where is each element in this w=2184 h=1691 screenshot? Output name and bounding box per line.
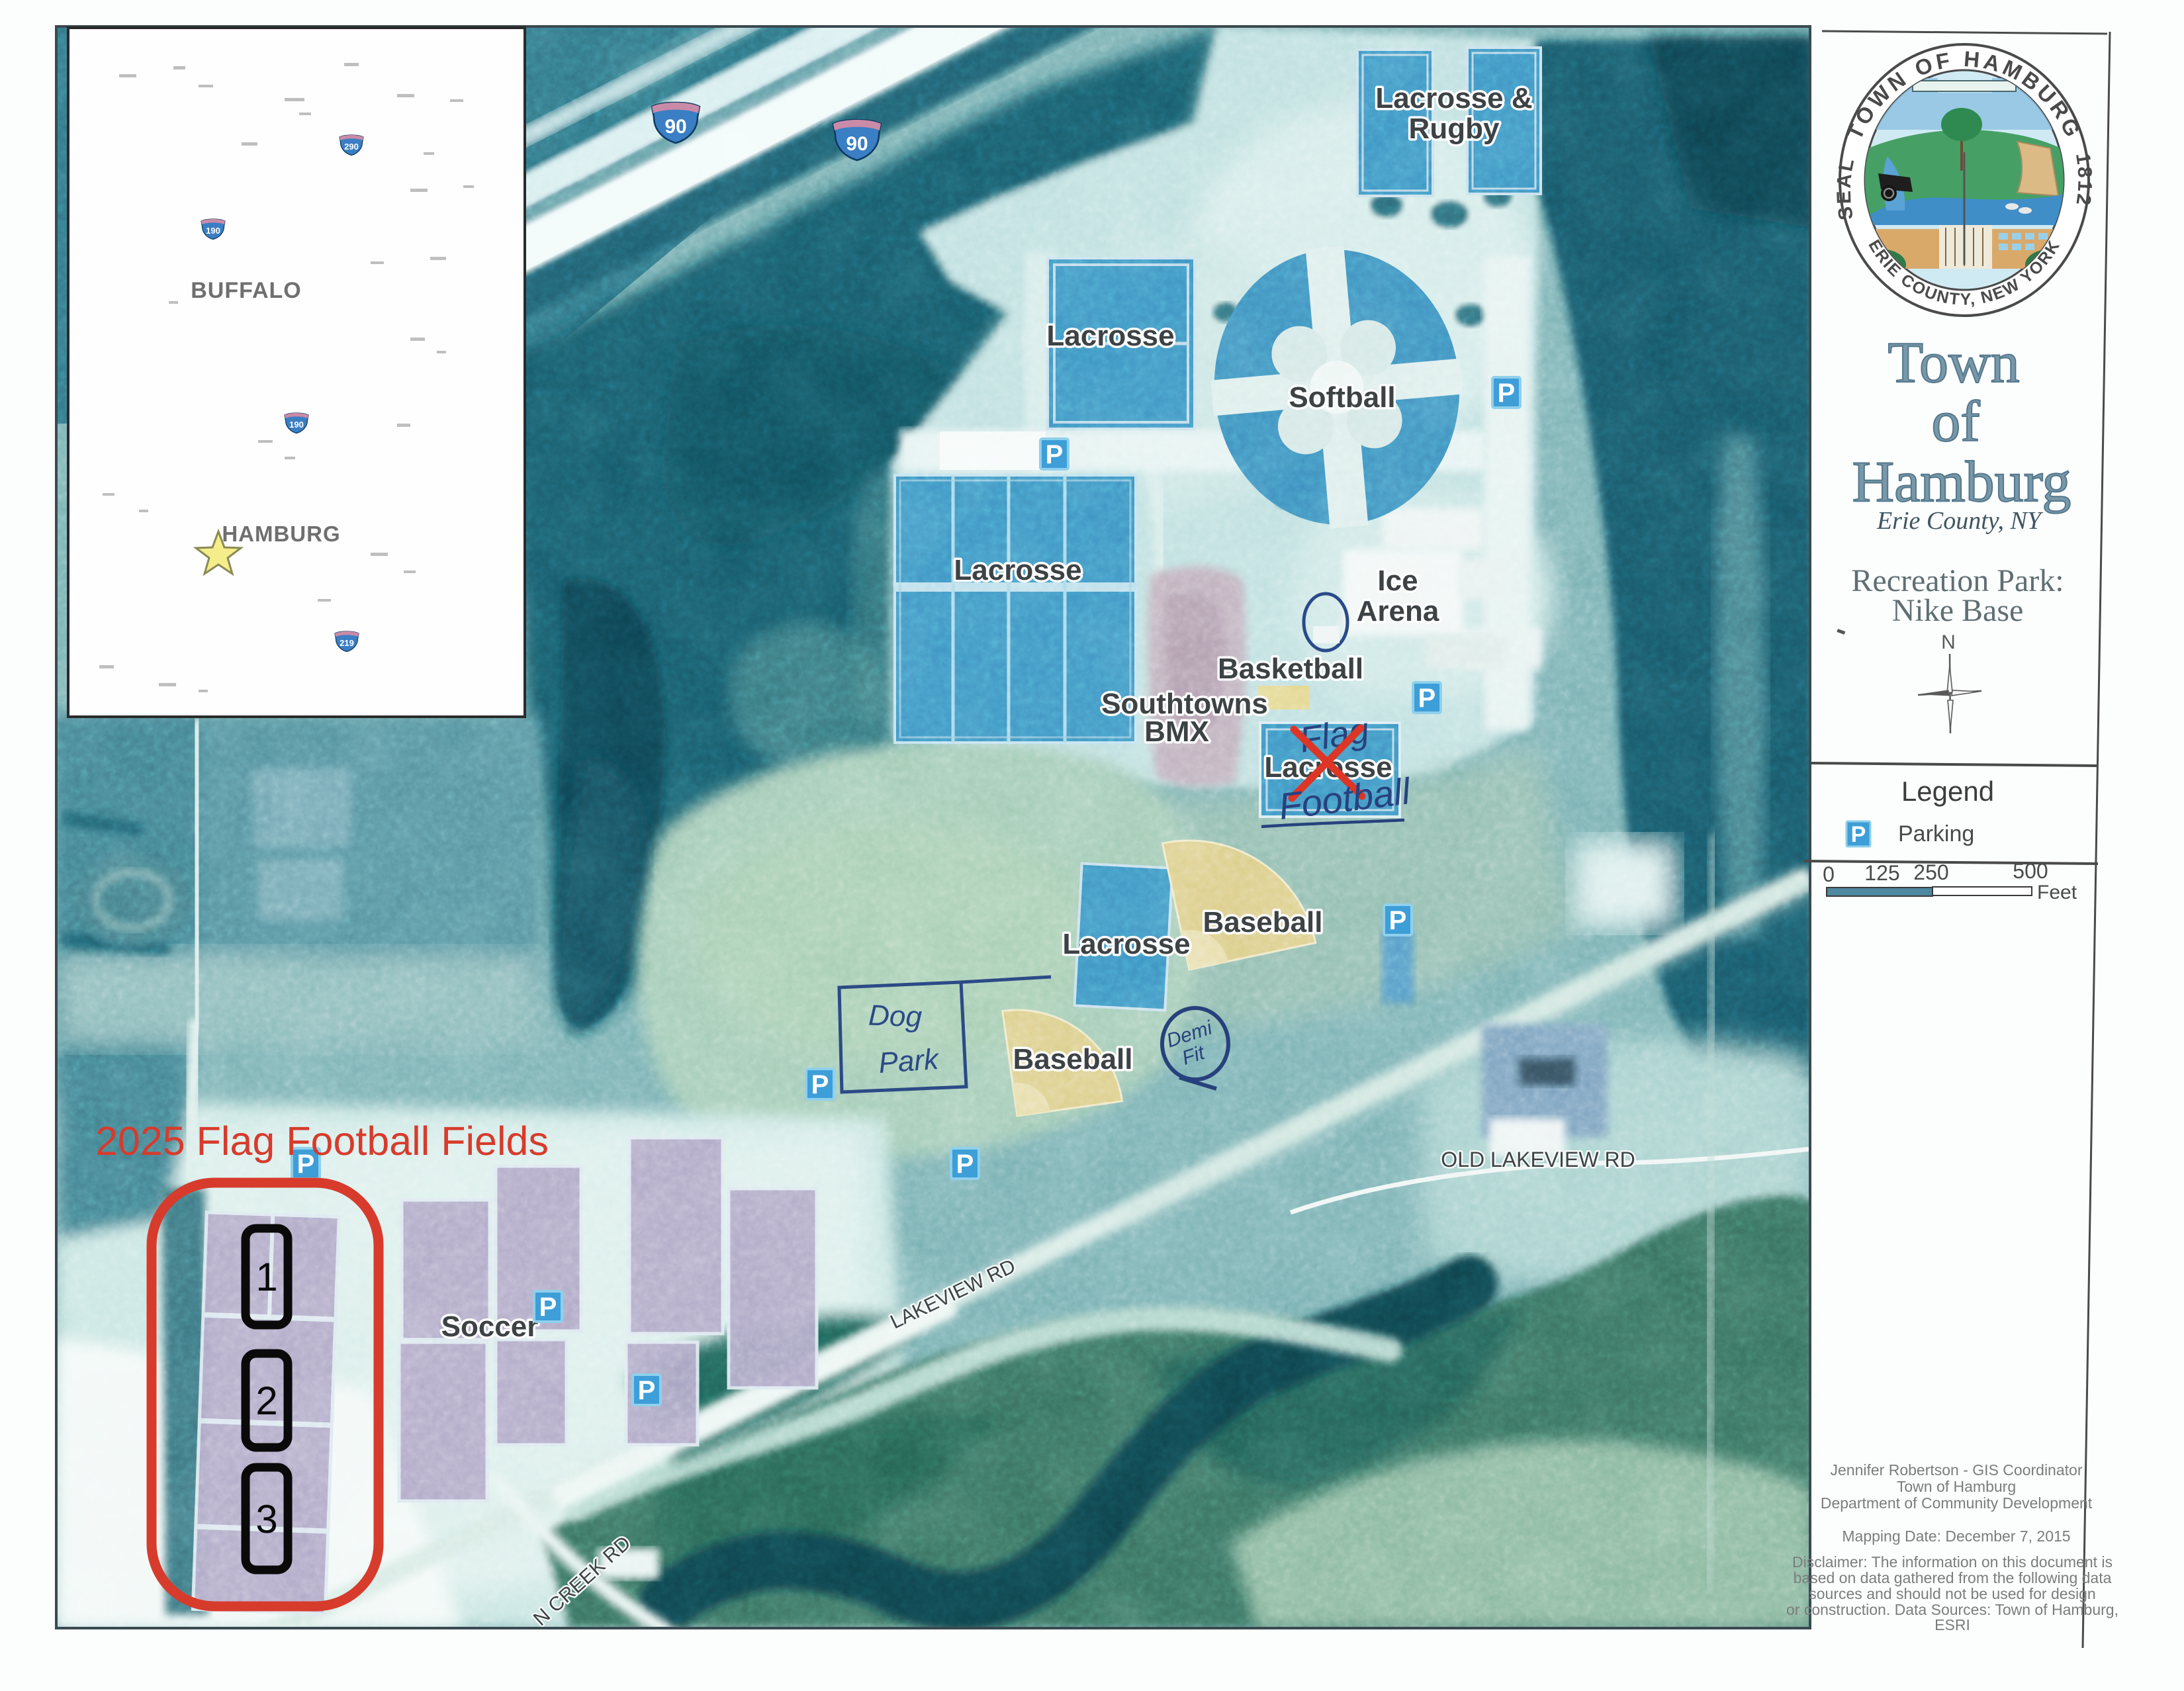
svg-text:BMX: BMX [1144, 715, 1209, 748]
svg-text:Ice: Ice [1377, 565, 1418, 597]
svg-text:BUFFALO: BUFFALO [191, 278, 302, 303]
svg-text:based on data gathered from th: based on data gathered from the followin… [1794, 1569, 2112, 1586]
svg-text:P: P [811, 1070, 829, 1099]
svg-text:90: 90 [846, 133, 868, 155]
svg-text:of: of [1931, 390, 1980, 454]
svg-text:2: 2 [255, 1379, 277, 1423]
svg-text:Baseball: Baseball [1013, 1043, 1133, 1075]
svg-text:OLD LAKEVIEW RD: OLD LAKEVIEW RD [1441, 1148, 1635, 1171]
svg-text:HAMBURG: HAMBURG [222, 522, 340, 546]
svg-text:P: P [638, 1376, 656, 1405]
svg-text:125: 125 [1864, 861, 1899, 885]
svg-text:Department of Community Develo: Department of Community Development [1821, 1494, 2093, 1512]
svg-text:Softball: Softball [1289, 381, 1395, 414]
svg-text:Lacrosse &: Lacrosse & [1375, 82, 1532, 114]
svg-text:Feet: Feet [2037, 882, 2077, 903]
svg-text:Town of Hamburg: Town of Hamburg [1897, 1478, 2016, 1495]
svg-text:Basketball: Basketball [1218, 653, 1363, 685]
svg-text:190: 190 [206, 226, 220, 236]
svg-text:Town: Town [1888, 331, 2019, 395]
svg-text:290: 290 [344, 142, 359, 152]
svg-text:P: P [1046, 440, 1064, 469]
svg-text:P: P [1851, 822, 1866, 847]
svg-text:2025 Flag Football Fields: 2025 Flag Football Fields [95, 1119, 549, 1164]
svg-text:Park: Park [878, 1043, 941, 1079]
svg-text:Nike Base: Nike Base [1892, 593, 2024, 628]
svg-text:Lacrosse: Lacrosse [954, 554, 1081, 586]
svg-text:Disclaimer: The information on: Disclaimer: The information on this docu… [1792, 1553, 2113, 1571]
svg-text:P: P [1389, 906, 1407, 935]
svg-text:Rugby: Rugby [1409, 113, 1500, 145]
svg-text:Soccer: Soccer [441, 1310, 539, 1343]
svg-text:P: P [1498, 379, 1516, 408]
svg-text:90: 90 [664, 116, 686, 138]
svg-text:Hamburg: Hamburg [1852, 450, 2071, 514]
svg-text:500: 500 [2013, 859, 2048, 883]
svg-text:Jennifer Robertson - GIS Coord: Jennifer Robertson - GIS Coordinator [1831, 1461, 2083, 1479]
svg-text:250: 250 [1913, 860, 1948, 884]
svg-text:P: P [956, 1150, 974, 1179]
svg-text:ESRI: ESRI [1934, 1616, 1970, 1633]
svg-text:Mapping Date: December 7, 2015: Mapping Date: December 7, 2015 [1842, 1528, 2070, 1545]
svg-text:P: P [1418, 684, 1436, 713]
svg-text:Lacrosse: Lacrosse [1046, 320, 1174, 352]
svg-text:sources and should not be used: sources and should not be used for desig… [1809, 1585, 2095, 1602]
svg-text:Dog: Dog [868, 999, 923, 1034]
svg-text:3: 3 [255, 1497, 277, 1541]
svg-text:Erie County, NY: Erie County, NY [1876, 507, 2044, 535]
svg-text:Legend: Legend [1901, 776, 1994, 807]
svg-text:190: 190 [289, 420, 304, 430]
svg-text:1: 1 [255, 1255, 277, 1299]
svg-text:P: P [539, 1293, 557, 1322]
svg-text:219: 219 [340, 638, 354, 648]
svg-text:Parking: Parking [1898, 821, 1974, 846]
svg-text:Lacrosse: Lacrosse [1062, 928, 1190, 960]
svg-text:Baseball: Baseball [1203, 906, 1323, 938]
svg-text:N: N [1941, 631, 1956, 653]
svg-text:0: 0 [1823, 862, 1835, 886]
svg-text:Arena: Arena [1357, 595, 1439, 627]
